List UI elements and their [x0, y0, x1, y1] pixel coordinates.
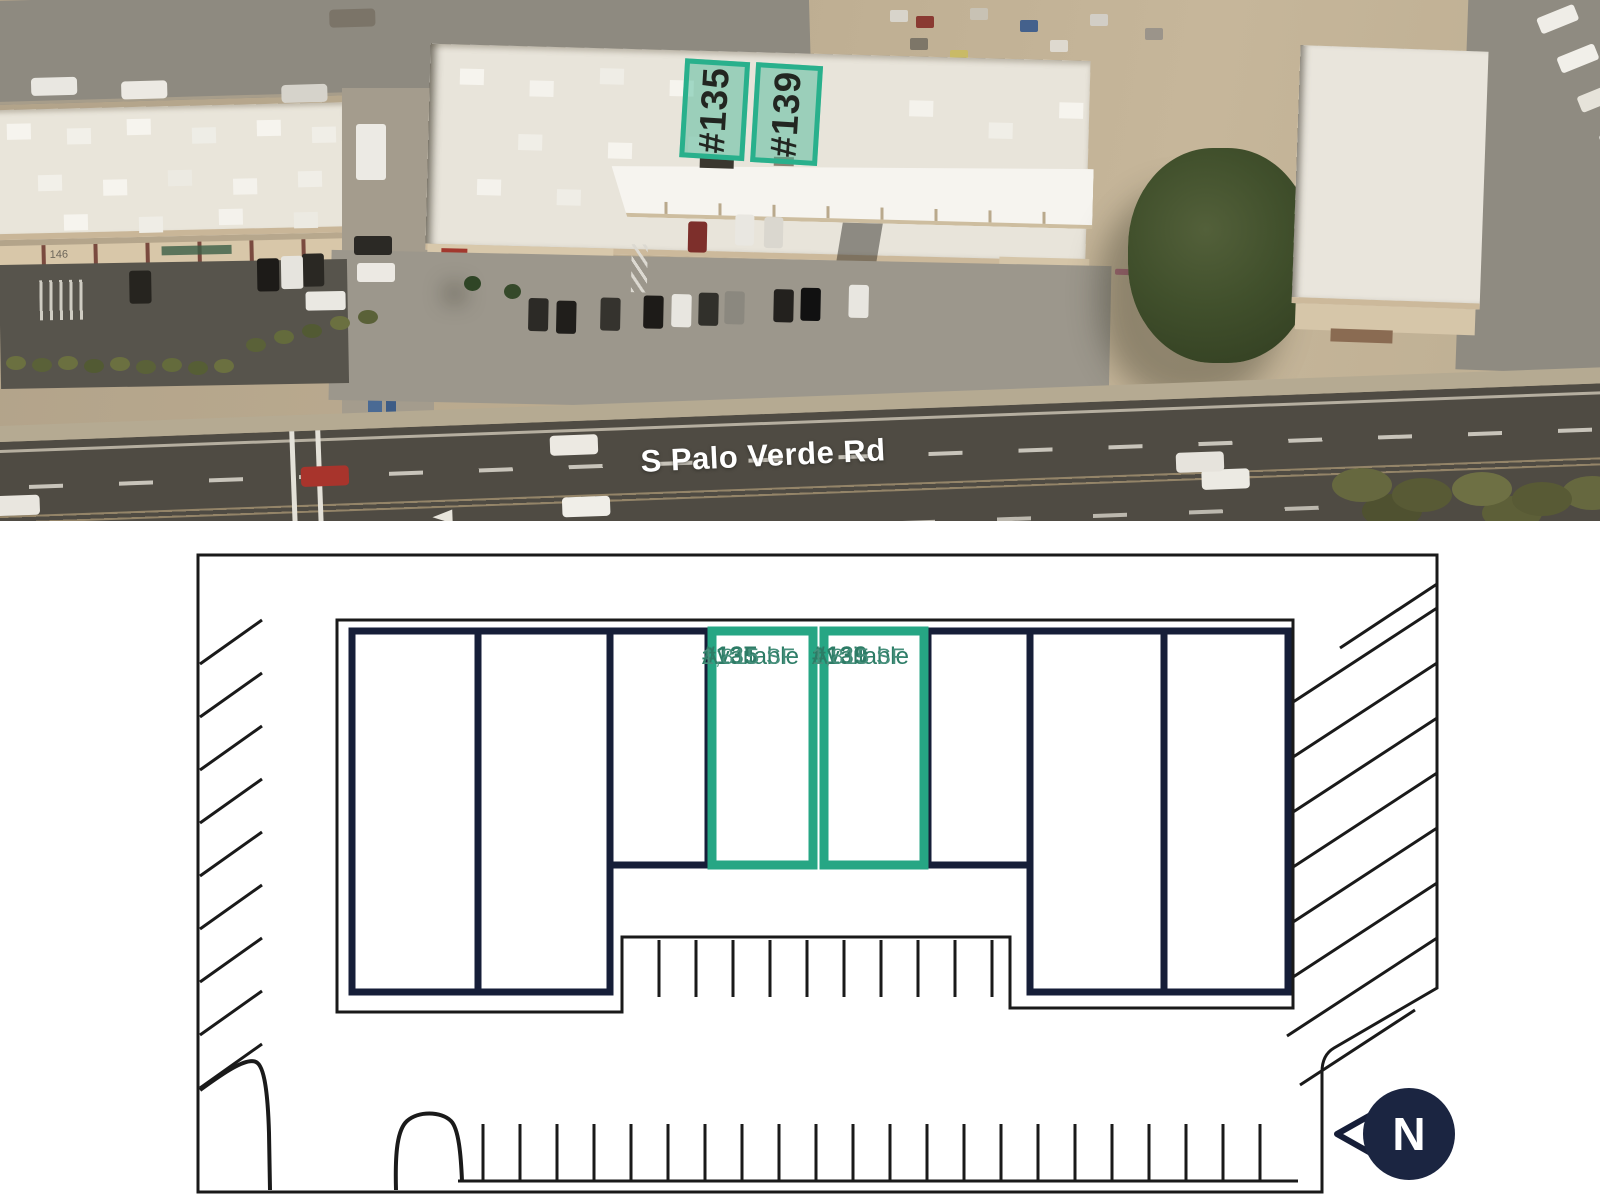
- unit-wing-west-2: [478, 631, 610, 992]
- unit-middle-b: [928, 631, 1030, 865]
- property-flyer: 146 #135 #139: [0, 0, 1600, 1200]
- unit-middle-a: [610, 631, 708, 865]
- north-compass: N: [1337, 1088, 1455, 1180]
- unit-135-area: 1,815 SF: [702, 642, 795, 671]
- site-plan: N: [0, 0, 1600, 1200]
- unit-139-area: 1,815 SF: [812, 642, 905, 671]
- compass-n-label: N: [1392, 1108, 1425, 1160]
- unit-wing-west-1: [352, 631, 478, 992]
- unit-wing-east-2: [1164, 631, 1288, 992]
- unit-wing-east-1: [1030, 631, 1164, 992]
